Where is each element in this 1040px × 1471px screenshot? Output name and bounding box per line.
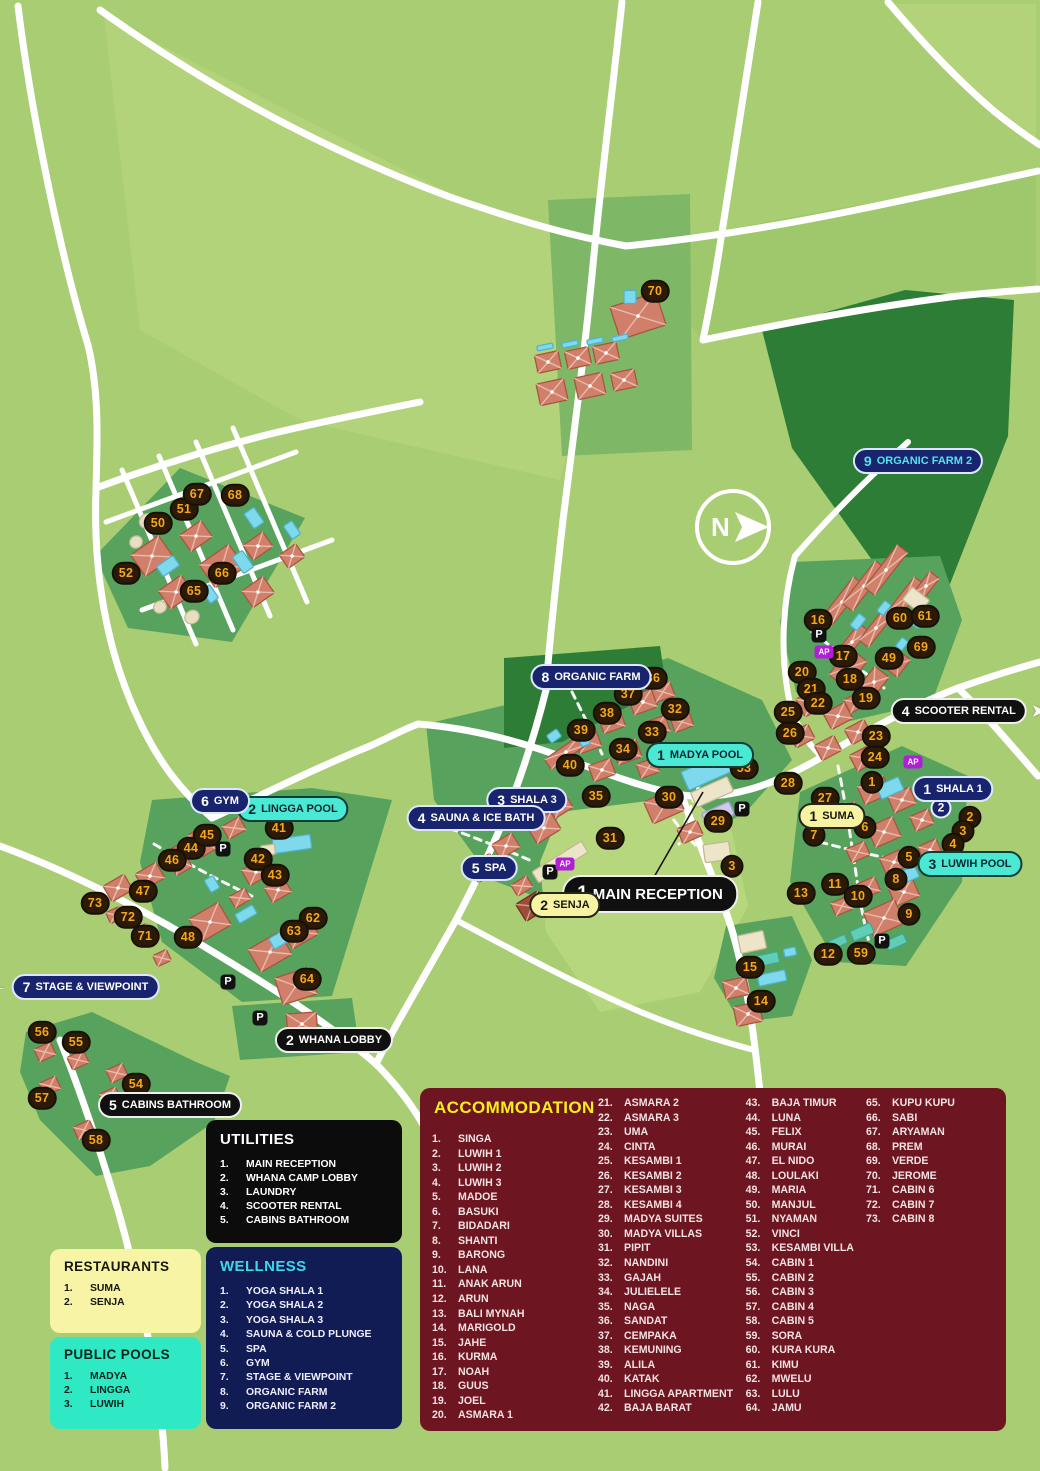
legend-item-label: ASMARA 1	[458, 1408, 513, 1423]
legend-item-number: 7.	[220, 1371, 246, 1385]
legend-item: 3.LUWIH 2	[432, 1161, 594, 1176]
legend-item-number: 31.	[598, 1241, 624, 1256]
legend-item: 4.SAUNA & COLD PLUNGE	[220, 1328, 388, 1342]
legend-item-label: NAGA	[624, 1300, 655, 1315]
legend-item-number: 2.	[432, 1147, 458, 1162]
legend-item: 38.KEMUNING	[598, 1343, 742, 1358]
legend-item: 21.ASMARA 2	[598, 1096, 742, 1111]
legend-item: 55.CABIN 2	[746, 1271, 862, 1286]
legend-item-number: 71.	[866, 1183, 892, 1198]
label-text: SAUNA & ICE BATH	[430, 812, 534, 824]
legend-item-label: UMA	[624, 1125, 648, 1140]
legend-item: 14.MARIGOLD	[432, 1321, 594, 1336]
legend-item: 54.CABIN 1	[746, 1256, 862, 1271]
legend-item-label: JAMU	[772, 1401, 802, 1416]
legend-item-number: 20.	[432, 1408, 458, 1423]
legend-item-number: 28.	[598, 1198, 624, 1213]
legend-item-label: BIDADARI	[458, 1219, 510, 1234]
legend-item: 2.LINGGA	[64, 1384, 187, 1398]
legend-item: 17.NOAH	[432, 1365, 594, 1380]
map-marker-68: 68	[221, 484, 250, 507]
legend-item-number: 68.	[866, 1140, 892, 1155]
legend-item-label: LUWIH 1	[458, 1147, 502, 1162]
legend-item-number: 3.	[220, 1314, 246, 1328]
legend-item-number: 3.	[220, 1186, 246, 1200]
legend-item-label: CABIN 5	[772, 1314, 814, 1329]
legend-item-number: 36.	[598, 1314, 624, 1329]
legend-item: 63.LULU	[746, 1387, 862, 1402]
legend-item-label: MARIGOLD	[458, 1321, 516, 1336]
legend-item-number: 15.	[432, 1336, 458, 1351]
legend-item: 44.LUNA	[746, 1111, 862, 1126]
map-marker-30: 30	[655, 786, 684, 809]
label-pill: 2LINGGA POOL	[237, 796, 348, 822]
legend-item-label: NYAMAN	[772, 1212, 818, 1227]
label-pill: 5CABINS BATHROOM	[98, 1092, 242, 1118]
label-text: SCOOTER RENTAL	[915, 705, 1016, 717]
legend-item-label: STAGE & VIEWPOINT	[246, 1371, 353, 1385]
legend-item: 20.ASMARA 1	[432, 1408, 594, 1423]
legend-item-label: SUMA	[90, 1282, 121, 1296]
parking-icon: P	[253, 1011, 268, 1026]
map-marker-73: 73	[81, 892, 110, 915]
label-text: WHANA LOBBY	[299, 1034, 382, 1046]
legend-item: 12.ARUN	[432, 1292, 594, 1307]
legend-item: 68.PREM	[866, 1140, 994, 1155]
map-marker-14: 14	[747, 990, 776, 1013]
legend-item-number: 2.	[64, 1296, 90, 1310]
legend-item-number: 50.	[746, 1198, 772, 1213]
map-marker-58: 58	[82, 1129, 111, 1152]
legend-item-label: SPA	[246, 1343, 267, 1357]
label-pill: 6GYM	[190, 788, 250, 814]
map-marker-61: 61	[911, 605, 940, 628]
legend-item-number: 17.	[432, 1365, 458, 1380]
legend-item-number: 37.	[598, 1329, 624, 1344]
legend-item: 36.SANDAT	[598, 1314, 742, 1329]
label-text: CABINS BATHROOM	[122, 1099, 231, 1111]
map-label-lingga-pool: 2LINGGA POOL	[237, 796, 348, 822]
label-text: ORGANIC FARM 2	[877, 455, 972, 467]
legend-item: 1.YOGA SHALA 1	[220, 1285, 388, 1299]
legend-item: 13.BALI MYNAH	[432, 1307, 594, 1322]
legend-item-label: MARIA	[772, 1183, 807, 1198]
legend-item-label: CABIN 8	[892, 1212, 934, 1227]
label-number: 9	[864, 453, 872, 469]
legend-item-number: 47.	[746, 1154, 772, 1169]
legend-item-number: 14.	[432, 1321, 458, 1336]
label-number: 2	[540, 897, 548, 913]
legend-item-number: 2.	[220, 1299, 246, 1313]
legend-accommodation: ACCOMMODATION 1.SINGA2.LUWIH 13.LUWIH 24…	[420, 1088, 1006, 1431]
legend-item-number: 62.	[746, 1372, 772, 1387]
legend-item-label: ASMARA 3	[624, 1111, 679, 1126]
map-label-luwih-pool: 3LUWIH POOL	[917, 851, 1022, 877]
legend-item-number: 41.	[598, 1387, 624, 1402]
legend-item: 9.ORGANIC FARM 2	[220, 1400, 388, 1414]
legend-item: 6.GYM	[220, 1357, 388, 1371]
legend-item-label: SABI	[892, 1111, 917, 1126]
map-marker-8: 8	[885, 868, 908, 891]
parking-icon: P	[221, 975, 236, 990]
map-marker-31: 31	[596, 827, 625, 850]
legend-item-number: 7.	[432, 1219, 458, 1234]
ap-icon: AP	[556, 858, 575, 871]
legend-item: 3.YOGA SHALA 3	[220, 1314, 388, 1328]
legend-item-number: 8.	[432, 1234, 458, 1249]
legend-item-label: ASMARA 2	[624, 1096, 679, 1111]
map-label-organic-farm: 8ORGANIC FARM	[531, 664, 652, 690]
legend-item: 7.BIDADARI	[432, 1219, 594, 1234]
legend-item-label: KESAMBI 1	[624, 1154, 682, 1169]
legend-item-label: LINGGA	[90, 1384, 130, 1398]
label-number: 2	[286, 1032, 294, 1048]
legend-item-label: LUWIH 3	[458, 1176, 502, 1191]
map-marker-22: 22	[804, 692, 833, 715]
legend-item-number: 4.	[220, 1328, 246, 1342]
legend-item-label: MADYA SUITES	[624, 1212, 703, 1227]
label-text: MADYA POOL	[670, 749, 743, 761]
legend-item-number: 57.	[746, 1300, 772, 1315]
legend-item-number: 26.	[598, 1169, 624, 1184]
legend-item-label: JULIELELE	[624, 1285, 681, 1300]
label-number: 5	[472, 860, 480, 876]
legend-item: 37.CEMPAKA	[598, 1329, 742, 1344]
map-label-scooter-rental: 4SCOOTER RENTAL➤	[891, 698, 1040, 724]
label-pill: 4SAUNA & ICE BATH	[407, 805, 546, 831]
legend-item-label: JOEL	[458, 1394, 486, 1409]
legend-item-number: 72.	[866, 1198, 892, 1213]
legend-item-label: PREM	[892, 1140, 923, 1155]
legend-item-number: 1.	[220, 1158, 246, 1172]
map-label-sauna-ice-bath: 4SAUNA & ICE BATH	[407, 805, 546, 831]
map-marker-50: 50	[144, 512, 173, 535]
map-marker-63: 63	[280, 920, 309, 943]
legend-item-label: ORGANIC FARM	[246, 1386, 327, 1400]
legend-item-label: CEMPAKA	[624, 1329, 677, 1344]
legend-item-label: YOGA SHALA 1	[246, 1285, 323, 1299]
map-label-madya-pool: 1MADYA POOL	[646, 742, 754, 768]
legend-item-number: 64.	[746, 1401, 772, 1416]
legend-utilities: UTILITIES 1.MAIN RECEPTION2.WHANA CAMP L…	[206, 1120, 402, 1243]
legend-item: 43.BAJA TIMUR	[746, 1096, 862, 1111]
legend-item-label: CABIN 4	[772, 1300, 814, 1315]
legend-item-number: 69.	[866, 1154, 892, 1169]
map-marker-11: 11	[821, 873, 849, 896]
map-marker-43: 43	[261, 864, 290, 887]
legend-item-label: SAUNA & COLD PLUNGE	[246, 1328, 371, 1342]
arrow-left-icon: ←	[0, 978, 7, 996]
legend-item-number: 2.	[220, 1172, 246, 1186]
legend-item-number: 25.	[598, 1154, 624, 1169]
legend-item-label: ALILA	[624, 1358, 655, 1373]
legend-item: 40.KATAK	[598, 1372, 742, 1387]
legend-item-number: 13.	[432, 1307, 458, 1322]
legend-item: 71.CABIN 6	[866, 1183, 994, 1198]
legend-item-label: BALI MYNAH	[458, 1307, 525, 1322]
legend-item-number: 48.	[746, 1169, 772, 1184]
label-number: 1	[657, 747, 665, 763]
legend-item: 3.LAUNDRY	[220, 1186, 388, 1200]
legend-item: 2.WHANA CAMP LOBBY	[220, 1172, 388, 1186]
ap-icon: AP	[815, 646, 834, 659]
legend-item-number: 61.	[746, 1358, 772, 1373]
map-marker-25: 25	[774, 701, 803, 724]
legend-item: 52.VINCI	[746, 1227, 862, 1242]
legend-item: 2.SENJA	[64, 1296, 187, 1310]
legend-item-label: LUWIH	[90, 1398, 124, 1412]
legend-accommodation-title: ACCOMMODATION	[434, 1098, 594, 1118]
legend-item-label: LINGGA APARTMENT	[624, 1387, 733, 1402]
map-marker-40: 40	[556, 754, 585, 777]
legend-item: 24.CINTA	[598, 1140, 742, 1155]
legend-item: 33.GAJAH	[598, 1271, 742, 1286]
legend-item: 49.MARIA	[746, 1183, 862, 1198]
label-number: 1	[809, 808, 817, 824]
legend-item-label: PIPIT	[624, 1241, 651, 1256]
legend-item-number: 45.	[746, 1125, 772, 1140]
label-text: ORGANIC FARM	[554, 671, 640, 683]
legend-item-number: 10.	[432, 1263, 458, 1278]
map-label-suma: 1SUMA	[798, 803, 865, 829]
legend-item: 23.UMA	[598, 1125, 742, 1140]
label-number: 1	[923, 781, 931, 797]
legend-item: 34.JULIELELE	[598, 1285, 742, 1300]
parking-icon: P	[812, 628, 827, 643]
map-marker-23: 23	[862, 725, 891, 748]
legend-item-number: 1.	[64, 1370, 90, 1384]
legend-item: 5.SPA	[220, 1343, 388, 1357]
legend-item-label: LAUNDRY	[246, 1186, 296, 1200]
legend-restaurants: RESTAURANTS 1.SUMA2.SENJA	[50, 1249, 201, 1333]
legend-item: 27.KESAMBI 3	[598, 1183, 742, 1198]
arrow-right-icon: ➤	[1032, 701, 1040, 721]
legend-item: 19.JOEL	[432, 1394, 594, 1409]
legend-item-label: SENJA	[90, 1296, 125, 1310]
legend-item: 4.LUWIH 3	[432, 1176, 594, 1191]
legend-item-number: 49.	[746, 1183, 772, 1198]
legend-item: 39.ALILA	[598, 1358, 742, 1373]
legend-item-label: LULU	[772, 1387, 800, 1402]
label-text: SHALA 1	[936, 783, 983, 795]
map-label-whana-lobby: 2WHANA LOBBY	[275, 1027, 393, 1053]
accommodation-column-2: 21.ASMARA 222.ASMARA 323.UMA24.CINTA25.K…	[598, 1096, 742, 1423]
map-marker-28: 28	[774, 772, 803, 795]
legend-item-number: 21.	[598, 1096, 624, 1111]
legend-item-label: YOGA SHALA 2	[246, 1299, 323, 1313]
map-marker-47: 47	[129, 880, 158, 903]
legend-item-number: 3.	[64, 1398, 90, 1412]
legend-item: 26.KESAMBI 2	[598, 1169, 742, 1184]
map-marker-70: 70	[641, 280, 670, 303]
legend-item-number: 59.	[746, 1329, 772, 1344]
legend-item: 56.CABIN 3	[746, 1285, 862, 1300]
label-text: GYM	[214, 795, 239, 807]
legend-item-label: MADYA VILLAS	[624, 1227, 702, 1242]
legend-item-number: 5.	[220, 1214, 246, 1228]
legend-item-number: 24.	[598, 1140, 624, 1155]
label-number: 3	[928, 856, 936, 872]
legend-item: 1.SUMA	[64, 1282, 187, 1296]
legend-item: 11.ANAK ARUN	[432, 1277, 594, 1292]
legend-item: 65.KUPU KUPU	[866, 1096, 994, 1111]
label-text: LINGGA POOL	[261, 803, 338, 815]
label-number: 4	[418, 810, 426, 826]
legend-item-label: ARUN	[458, 1292, 489, 1307]
label-text: SPA	[484, 862, 506, 874]
legend-item-label: MANJUL	[772, 1198, 816, 1213]
legend-item: 10.LANA	[432, 1263, 594, 1278]
legend-item-number: 3.	[432, 1161, 458, 1176]
legend-item-label: KURA KURA	[772, 1343, 836, 1358]
parking-icon: P	[735, 802, 750, 817]
legend-item-number: 33.	[598, 1271, 624, 1286]
legend-item-label: JEROME	[892, 1169, 937, 1184]
legend-item-label: CABIN 6	[892, 1183, 934, 1198]
legend-item-number: 38.	[598, 1343, 624, 1358]
accommodation-column-1: 1.SINGA2.LUWIH 13.LUWIH 24.LUWIH 35.MADO…	[432, 1132, 594, 1423]
legend-item-label: SCOOTER RENTAL	[246, 1200, 342, 1214]
legend-item: 59.SORA	[746, 1329, 862, 1344]
public-pools-list: 1.MADYA2.LINGGA3.LUWIH	[64, 1370, 187, 1412]
legend-item-number: 5.	[432, 1190, 458, 1205]
legend-item-number: 6.	[220, 1357, 246, 1371]
legend-item: 72.CABIN 7	[866, 1198, 994, 1213]
parking-icon: P	[875, 934, 890, 949]
legend-item-number: 32.	[598, 1256, 624, 1271]
legend-item-label: BASUKI	[458, 1205, 499, 1220]
legend-item: 3.LUWIH	[64, 1398, 187, 1412]
map-marker-15: 15	[736, 956, 765, 979]
legend-item: 48.LOULAKI	[746, 1169, 862, 1184]
legend-item-number: 35.	[598, 1300, 624, 1315]
legend-item-number: 8.	[220, 1386, 246, 1400]
legend-item: 60.KURA KURA	[746, 1343, 862, 1358]
map-label-stage-viewpoint: ←7STAGE & VIEWPOINT	[0, 974, 159, 1000]
legend-item-number: 65.	[866, 1096, 892, 1111]
legend-item: 64.JAMU	[746, 1401, 862, 1416]
map-marker-24: 24	[861, 746, 890, 769]
legend-item-number: 19.	[432, 1394, 458, 1409]
map-marker-66: 66	[208, 562, 237, 585]
map-marker-9: 9	[898, 903, 921, 926]
legend-item-number: 1.	[220, 1285, 246, 1299]
legend-item-number: 40.	[598, 1372, 624, 1387]
legend-item-number: 63.	[746, 1387, 772, 1402]
legend-item-number: 27.	[598, 1183, 624, 1198]
legend-item-label: KEMUNING	[624, 1343, 682, 1358]
legend-item-label: EL NIDO	[772, 1154, 815, 1169]
map-marker-59: 59	[847, 942, 876, 965]
legend-item-label: SHANTI	[458, 1234, 497, 1249]
label-pill: 4SCOOTER RENTAL	[891, 698, 1027, 724]
legend-item-label: LUNA	[772, 1111, 801, 1126]
map-marker-26: 26	[776, 722, 805, 745]
legend-item-label: LUWIH 2	[458, 1161, 502, 1176]
legend-item-label: MADOE	[458, 1190, 497, 1205]
map-marker-39: 39	[567, 719, 596, 742]
legend-item-label: SINGA	[458, 1132, 492, 1147]
legend-item: 29.MADYA SUITES	[598, 1212, 742, 1227]
legend-item-label: BAJA BARAT	[624, 1401, 692, 1416]
legend-item: 47.EL NIDO	[746, 1154, 862, 1169]
legend-item-number: 67.	[866, 1125, 892, 1140]
legend-item-number: 16.	[432, 1350, 458, 1365]
legend-item-number: 53.	[746, 1241, 772, 1256]
map-marker-29: 29	[704, 810, 733, 833]
legend-item: 28.KESAMBI 4	[598, 1198, 742, 1213]
legend-item-number: 30.	[598, 1227, 624, 1242]
accommodation-column-3: 43.BAJA TIMUR44.LUNA45.FELIX46.MURAI47.E…	[746, 1096, 862, 1423]
legend-item: 30.MADYA VILLAS	[598, 1227, 742, 1242]
legend-item: 1.MADYA	[64, 1370, 187, 1384]
legend-item-number: 55.	[746, 1271, 772, 1286]
legend-item-label: GYM	[246, 1357, 270, 1371]
legend-item-number: 54.	[746, 1256, 772, 1271]
legend-item: 67.ARYAMAN	[866, 1125, 994, 1140]
label-number: 8	[542, 669, 550, 685]
ap-icon: AP	[904, 756, 923, 769]
legend-item: 8.ORGANIC FARM	[220, 1386, 388, 1400]
map-label-shala-1: 1SHALA 1	[912, 776, 993, 802]
label-pill: 1SUMA	[798, 803, 865, 829]
legend-item-number: 5.	[220, 1343, 246, 1357]
map-label-gym: 6GYM	[190, 788, 250, 814]
map-marker-57: 57	[28, 1087, 57, 1110]
legend-item-label: VINCI	[772, 1227, 800, 1242]
label-pill: 3LUWIH POOL	[917, 851, 1022, 877]
legend-item: 25.KESAMBI 1	[598, 1154, 742, 1169]
map-label-cabins-bathroom: 5CABINS BATHROOM	[98, 1092, 242, 1118]
label-pill: 9ORGANIC FARM 2	[853, 448, 983, 474]
legend-item-number: 2.	[64, 1384, 90, 1398]
legend-item: 1.MAIN RECEPTION	[220, 1158, 388, 1172]
label-text: LUWIH POOL	[941, 858, 1011, 870]
wellness-list: 1.YOGA SHALA 12.YOGA SHALA 23.YOGA SHALA…	[220, 1285, 388, 1415]
map-label-spa: 5SPA	[461, 855, 518, 881]
legend-item-label: CABIN 7	[892, 1198, 934, 1213]
legend-item-label: KATAK	[624, 1372, 660, 1387]
map-marker-55: 55	[62, 1031, 91, 1054]
legend-item-label: CABIN 1	[772, 1256, 814, 1271]
legend-item-label: KIMU	[772, 1358, 799, 1373]
legend-item: 70.JEROME	[866, 1169, 994, 1184]
legend-public-pools: PUBLIC POOLS 1.MADYA2.LINGGA3.LUWIH	[50, 1337, 201, 1429]
legend-item-label: JAHE	[458, 1336, 486, 1351]
accommodation-column-4: 65.KUPU KUPU66.SABI67.ARYAMAN68.PREM69.V…	[866, 1096, 994, 1423]
map-marker-32: 32	[661, 698, 690, 721]
legend-item: 46.MURAI	[746, 1140, 862, 1155]
legend-item-label: SORA	[772, 1329, 803, 1344]
legend-item: 62.MWELU	[746, 1372, 862, 1387]
legend-item-label: NANDINI	[624, 1256, 668, 1271]
legend-item-label: GAJAH	[624, 1271, 661, 1286]
parking-icon: P	[216, 842, 231, 857]
legend-item-label: ARYAMAN	[892, 1125, 945, 1140]
legend-item-label: LOULAKI	[772, 1169, 819, 1184]
legend-item-number: 58.	[746, 1314, 772, 1329]
legend-item-label: LANA	[458, 1263, 487, 1278]
legend-item-number: 73.	[866, 1212, 892, 1227]
map-marker-12: 12	[814, 943, 843, 966]
legend-item-label: ORGANIC FARM 2	[246, 1400, 336, 1414]
legend-item: 35.NAGA	[598, 1300, 742, 1315]
legend-item-label: KURMA	[458, 1350, 497, 1365]
legend-item-number: 29.	[598, 1212, 624, 1227]
legend-item: 31.PIPIT	[598, 1241, 742, 1256]
label-pill: 1MADYA POOL	[646, 742, 754, 768]
label-number: 7	[23, 979, 31, 995]
